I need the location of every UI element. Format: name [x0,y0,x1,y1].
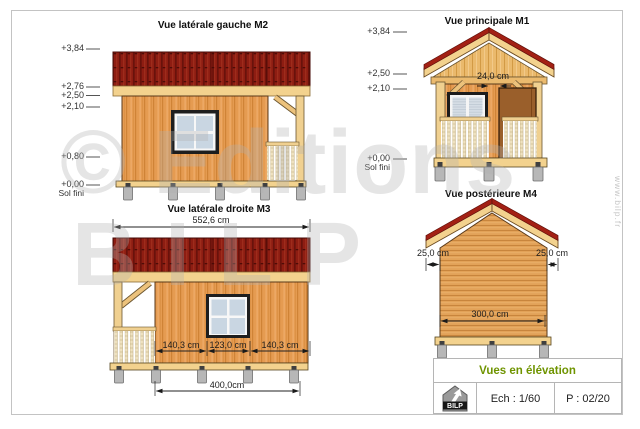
m2-floor [116,181,306,187]
m2-title: Vue latérale gauche M2 [158,20,268,31]
m4-title: Vue postérieure M4 [445,189,537,200]
bilp-logo-text: BILP [447,403,463,410]
m1-level-ticks [393,32,407,159]
bilp-logo: BILP [434,383,477,414]
m1-title: Vue principale M1 [445,16,530,27]
m4-footings [438,345,549,358]
m1-railing-right-slats [503,121,537,158]
m1-ground-label: Sol fini [344,163,390,172]
m1-jamb-dim: 24,0 cm [477,72,509,81]
m3-body-dim: 400,0cm [210,381,245,390]
m3-footings [115,370,299,383]
m2-level-080: +0,80 [38,152,84,161]
m2-roof [113,52,310,86]
m3-brace [121,283,150,306]
m3-railing-top [113,327,156,331]
m2-level-ticks [86,49,100,185]
m1-footings [435,167,543,181]
m4-wall-width-dim: 300,0 cm [471,310,508,319]
m2-fascia [113,86,310,96]
m3-fascia [113,272,310,282]
m3-floor [110,363,308,370]
m1-railing-right-top [502,117,538,121]
view-m1-building [393,28,554,182]
m3-railing-slats [114,331,155,363]
page-number: P : 02/20 [555,383,621,414]
m2-level-210: +2,10 [38,102,84,111]
m4-left-overhang-dim: 25,0 cm [417,249,449,258]
m2-window [171,110,219,154]
m1-level-210: +2,10 [344,84,390,93]
m2-ground-label: Sol fini [38,189,84,198]
m4-right-overhang-dim: 25,0 cm [536,249,568,258]
drawing-title: Vues en élévation [434,359,621,383]
view-m2-building [86,49,310,200]
m1-railing-left-top [440,117,490,121]
view-m3-building [110,219,310,396]
drawing-sheet: Vue latérale gauche M2 Vue principale M1… [0,0,640,429]
m1-level-384: +3,84 [344,27,390,36]
m2-footings [124,187,306,200]
view-m4-building [426,199,558,359]
m3-roof [113,238,310,272]
m2-level-250: +2,50 [38,91,84,100]
m2-level-384: +3,84 [38,44,84,53]
scale-value: Ech : 1/60 [477,383,555,414]
m3-window-dim: 123,0 cm [209,341,246,350]
m3-left-dim: 140,3 cm [162,341,199,350]
m2-railing-top [266,142,299,146]
m3-right-dim: 140,3 cm [261,341,298,350]
bilp-logo-icon: BILP [441,385,469,412]
m1-level-250: +2,50 [344,69,390,78]
m3-window [206,294,250,338]
m1-railing-left-slats [441,121,489,158]
m2-brace [275,97,299,115]
m2-railing-slats [267,146,298,180]
m3-total-width-dim: 552,6 cm [192,216,229,225]
m3-title: Vue latérale droite M3 [168,204,271,215]
title-block: Vues en élévation BILP Ech : 1/60 P : 02… [433,358,622,414]
